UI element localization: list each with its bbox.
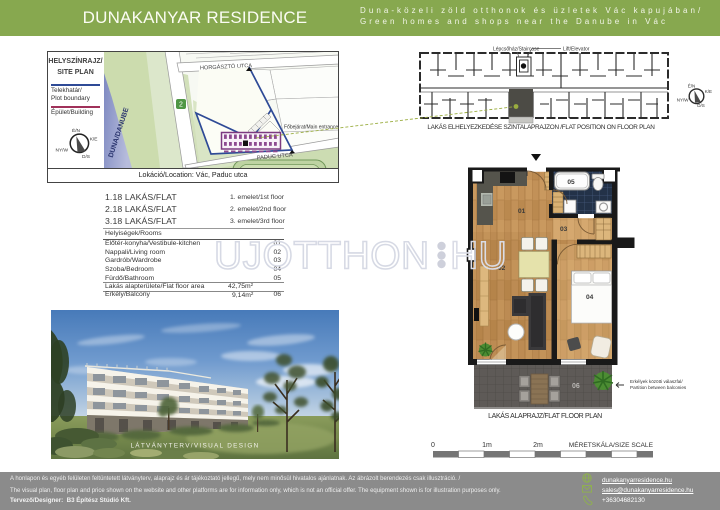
svg-text:Lépcsőház/Staircase: Lépcsőház/Staircase [493,47,540,53]
svg-text:NY/W: NY/W [677,98,690,103]
svg-text:05: 05 [567,179,575,186]
svg-text:É/N: É/N [688,82,696,88]
svg-text:06: 06 [572,383,580,390]
svg-text:HU: HU [450,235,507,278]
svg-text:1m: 1m [482,442,492,449]
svg-text:K/E: K/E [705,89,712,94]
svg-text:03: 03 [560,226,568,233]
svg-text:UJOTTHON: UJOTTHON [214,235,430,278]
svg-text:Lift/Elevator: Lift/Elevator [563,47,590,53]
svg-text:MÉRETSKÁLA/SIZE SCALE: MÉRETSKÁLA/SIZE SCALE [569,440,654,449]
svg-text:2m: 2m [533,442,543,449]
svg-text:D/S: D/S [697,103,705,108]
svg-text:0: 0 [431,442,435,449]
svg-text:01: 01 [518,208,526,215]
svg-text:04: 04 [586,294,594,301]
svg-text:LÁTVÁNYTERV/VISUAL DESIGN: LÁTVÁNYTERV/VISUAL DESIGN [130,441,259,450]
